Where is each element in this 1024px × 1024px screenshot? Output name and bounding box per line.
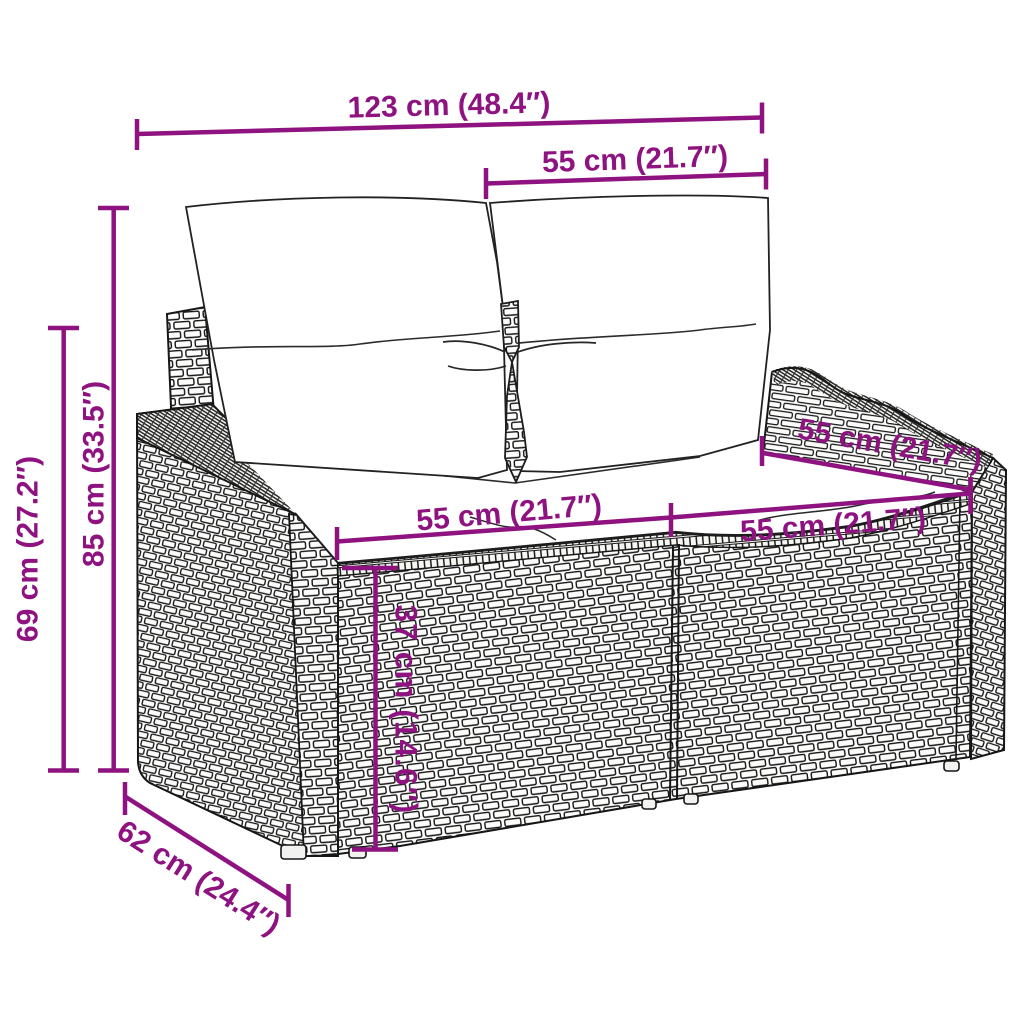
svg-text:37 cm (14.6″): 37 cm (14.6″) [389,605,425,815]
svg-text:85 cm (33.5″): 85 cm (33.5″) [78,381,111,567]
svg-text:69 cm (27.2″): 69 cm (27.2″) [12,456,45,642]
svg-text:123 cm (48.4″): 123 cm (48.4″) [347,86,551,124]
svg-text:55 cm (21.7″): 55 cm (21.7″) [541,140,728,179]
